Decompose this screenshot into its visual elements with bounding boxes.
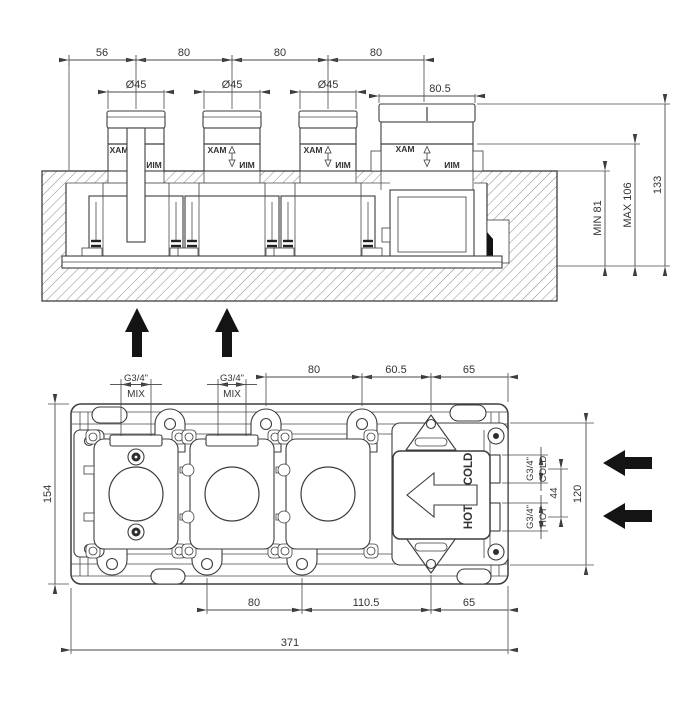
fixing-slot <box>92 407 127 423</box>
frame-height-dim: 120 <box>572 485 584 503</box>
mounting-plate <box>62 256 502 268</box>
plan-bottom-dim-65: 65 <box>463 597 475 609</box>
min-depth-dim: MIN 81 <box>592 200 604 235</box>
cold-label: COLD <box>463 453 475 486</box>
plan-view: COLD HOT G3/4" MIX G3/4" MIX 80 60.5 65 <box>42 364 652 654</box>
total-height-dim: 133 <box>652 176 664 194</box>
body-height-dim: 154 <box>42 485 54 503</box>
screw <box>128 524 144 540</box>
max-label-mirrored: MAX <box>109 145 128 155</box>
mix-label: MIX <box>127 389 145 400</box>
cold-inlet-arrow <box>603 450 652 476</box>
dim-hot-port: G3/4" HOT <box>502 495 549 539</box>
cold-port-label: COLD <box>538 456 549 483</box>
hot-label: HOT <box>463 505 475 529</box>
plan-top-dim-80: 80 <box>308 364 320 376</box>
dim-plan-bottom-chain: 80 110.5 65 <box>207 575 508 654</box>
plan-top-dim-60-5: 60.5 <box>385 364 406 376</box>
max-label-mirrored: MAX <box>395 144 414 154</box>
fixing-slot <box>450 405 486 421</box>
mix-thread-label: G3/4" <box>220 373 244 384</box>
plan-bottom-dim-110-5: 110.5 <box>353 597 380 609</box>
corner-screw <box>488 544 504 560</box>
thermostat-assembly: COLD HOT <box>392 415 508 573</box>
max-label-mirrored: MAX <box>207 145 226 155</box>
dim-overall-width: 371 <box>71 588 508 654</box>
fixing-slot <box>151 569 185 584</box>
dim-body-height: 154 <box>42 404 69 584</box>
chain-dim-56: 56 <box>96 47 108 59</box>
min-label-mirrored: MIN <box>239 160 255 170</box>
port-gap-dim: 44 <box>549 487 560 499</box>
min-label-mirrored: MIN <box>146 160 162 170</box>
max-depth-dim: MAX 106 <box>622 182 634 227</box>
chain-dim-80c: 80 <box>370 47 382 59</box>
outlet-arrow-up-1 <box>125 308 149 357</box>
hot-thread-label: G3/4" <box>525 505 536 529</box>
thermo-width-dim: 80.5 <box>429 83 450 95</box>
section-view: MAX MIN MAX MIN MAX MIN <box>42 47 670 357</box>
max-label-mirrored: MAX <box>303 145 322 155</box>
mix-thread-label: G3/4" <box>124 373 148 384</box>
min-label-mirrored: MIN <box>335 160 351 170</box>
hot-port-label: HOT <box>538 507 549 527</box>
dim-port-gap: 44 <box>548 469 568 517</box>
valve-module-2 <box>180 435 274 549</box>
cold-thread-label: G3/4" <box>525 457 536 481</box>
chain-dim-80a: 80 <box>178 47 190 59</box>
thermostat-body <box>382 190 474 258</box>
installation-drawing: MAX MIN MAX MIN MAX MIN <box>0 0 700 700</box>
valve-module-3 <box>276 439 370 549</box>
min-label-mirrored: MIN <box>444 160 460 170</box>
plan-top-dim-65: 65 <box>463 364 475 376</box>
outlet-arrow-up-2 <box>215 308 239 357</box>
mix-label: MIX <box>223 389 241 400</box>
plan-bottom-dim-80: 80 <box>248 597 260 609</box>
screw <box>128 449 144 465</box>
valve-module-1 <box>84 435 178 549</box>
dim-cold-port: G3/4" COLD <box>502 447 549 491</box>
fixing-slot <box>457 569 491 584</box>
drawing-canvas: MAX MIN MAX MIN MAX MIN <box>0 0 700 700</box>
overall-width-dim: 371 <box>281 637 299 649</box>
chain-dim-80b: 80 <box>274 47 286 59</box>
corner-screw <box>488 428 504 444</box>
hot-inlet-arrow <box>603 503 652 529</box>
